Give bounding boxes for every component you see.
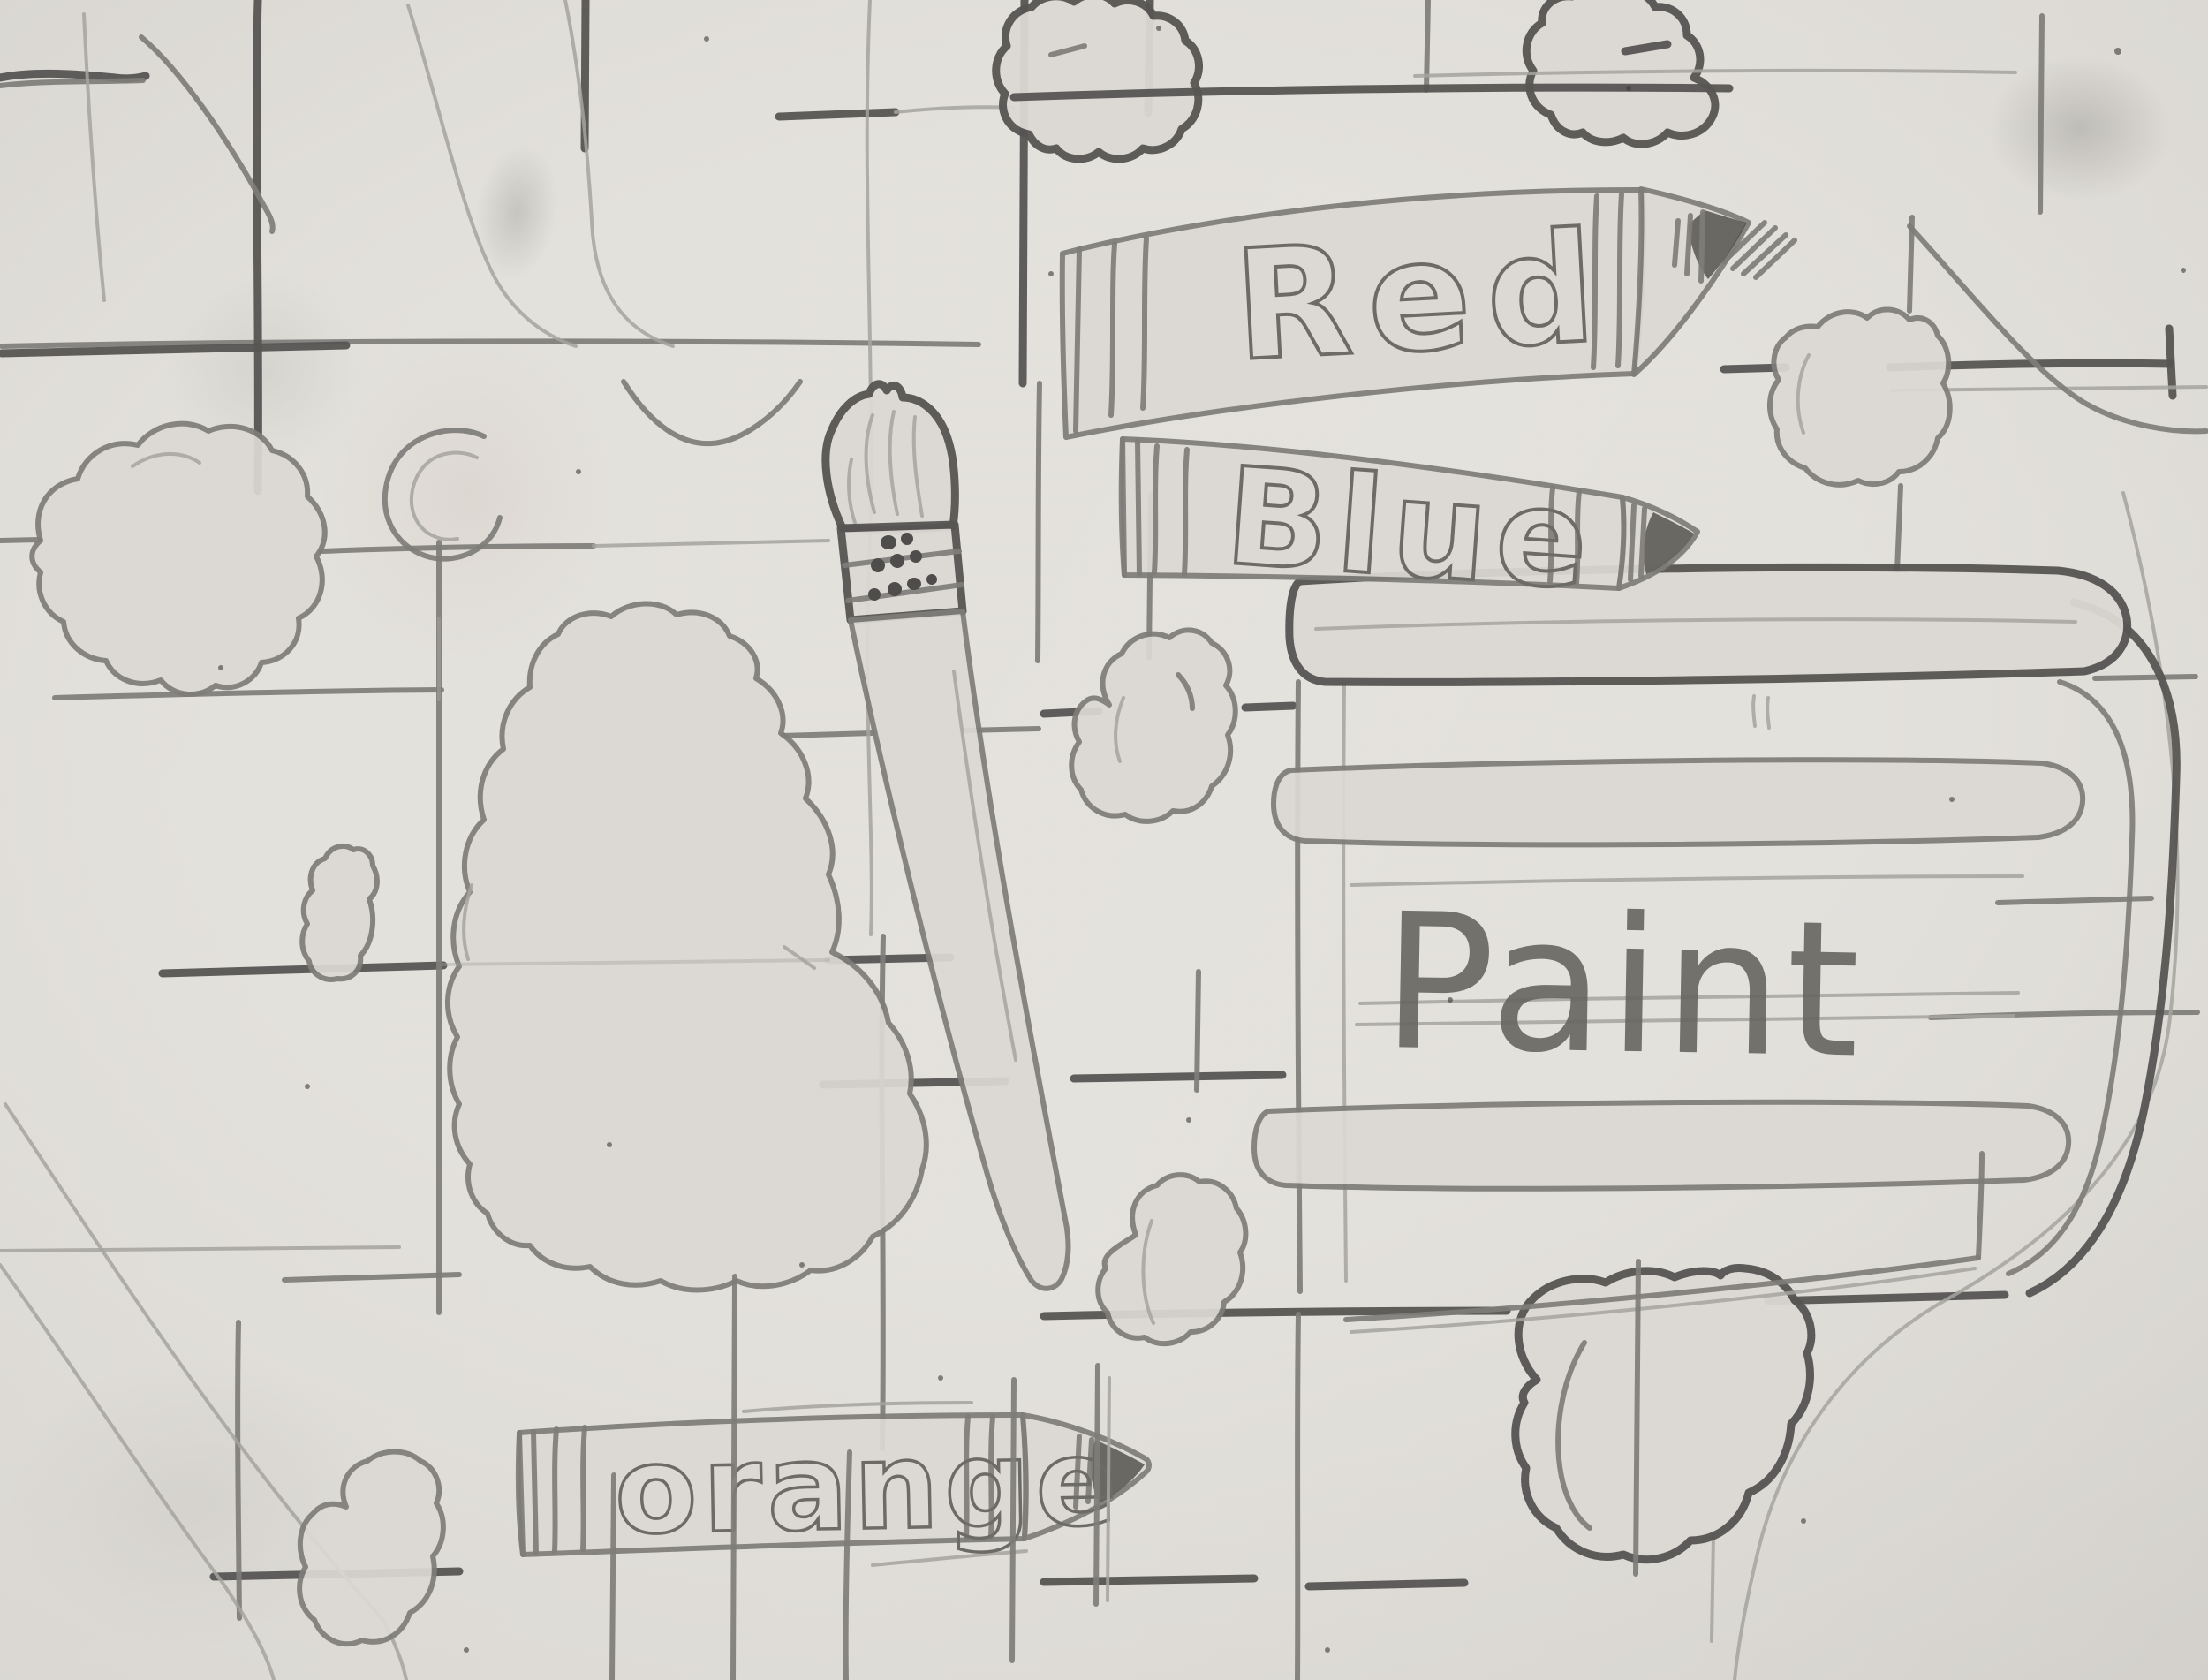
cloud-outline: [32, 424, 324, 694]
curve-top-left-light: [84, 14, 104, 300]
grid-line: [779, 112, 896, 117]
paint-label: Paint: [1380, 873, 1865, 1099]
grid-line: [284, 1275, 459, 1280]
crayon-red: Red: [1062, 189, 1749, 437]
grid-line: [257, 0, 259, 491]
blob-mid: [1071, 630, 1236, 821]
red-label: Red: [1230, 198, 1615, 395]
grid-line: [1197, 972, 1199, 1090]
drawing-svg: Paint Red: [0, 0, 2208, 1680]
stripe: [1618, 194, 1622, 366]
blue-label: Blue: [1221, 438, 1602, 620]
stripe: [555, 1429, 556, 1551]
grid-line: [1038, 383, 1040, 661]
grid-line-over: [1096, 1366, 1098, 1604]
grid-line-over: [846, 1452, 850, 1680]
grid-line-over: [733, 1276, 735, 1680]
ring-inner: [412, 453, 477, 540]
cloud-outline: [996, 0, 1199, 159]
stripe: [1111, 244, 1115, 415]
bucket-band-lower: [1254, 1102, 2068, 1189]
stripe: [1143, 238, 1146, 408]
curve-neck-left: [408, 5, 576, 346]
blob-small-left: [302, 846, 377, 980]
curve-bottom-left-2: [0, 1265, 274, 1680]
curve-right-sweep: [1909, 226, 2206, 431]
grid-line: [2040, 16, 2042, 212]
bucket-handle-outer: [2030, 602, 2176, 1293]
grid-line: [594, 541, 828, 546]
grid-line-over: [1636, 1261, 1638, 1574]
curve-smile: [624, 382, 800, 443]
blob-kidney-bottom-left: [299, 1452, 443, 1645]
crayon-top-double-line: [744, 1403, 972, 1411]
big-blob: [448, 603, 926, 1290]
grid-line: [1768, 1295, 2005, 1301]
stripe: [583, 1427, 585, 1549]
cloud-blob-top-center: [996, 0, 1199, 159]
grid-line-over: [612, 1475, 614, 1680]
grid-line: [896, 107, 1014, 112]
grid-line: [2, 341, 979, 346]
grid-line-over: [1108, 1378, 1109, 1601]
stripe: [1184, 450, 1187, 574]
bucket-small-marks: [1753, 696, 1769, 728]
blob-right: [1724, 223, 1950, 485]
blob-ear: [1098, 1175, 1245, 1343]
paint-bucket: Paint: [1254, 567, 2176, 1332]
blob-outline: [1071, 630, 1236, 821]
grid-line: [1712, 1535, 1713, 1641]
blob-outline: [1098, 1175, 1245, 1343]
grid-line-over: [1012, 1380, 1014, 1661]
orange-label: orange: [614, 1413, 1123, 1562]
grid-line: [55, 690, 442, 698]
grid-line-over: [1415, 71, 2015, 76]
stripe: [1154, 446, 1157, 572]
crayon-end-cap-line: [1076, 249, 1079, 431]
pencil-drawing-photo: Paint Red: [0, 0, 2208, 1680]
grid-line: [1297, 1314, 1298, 1680]
blob-outline: [299, 1452, 443, 1645]
grid-line: [0, 73, 146, 78]
bucket-band-upper: [1274, 760, 2083, 844]
cloud-blob-left: [32, 424, 324, 694]
big-blob-outline: [448, 603, 926, 1290]
grid-line: [238, 1322, 239, 1618]
grid-line: [0, 1247, 399, 1251]
ring-doodle: [385, 430, 500, 558]
blob-outline: [302, 846, 377, 980]
grid-line: [0, 80, 143, 86]
